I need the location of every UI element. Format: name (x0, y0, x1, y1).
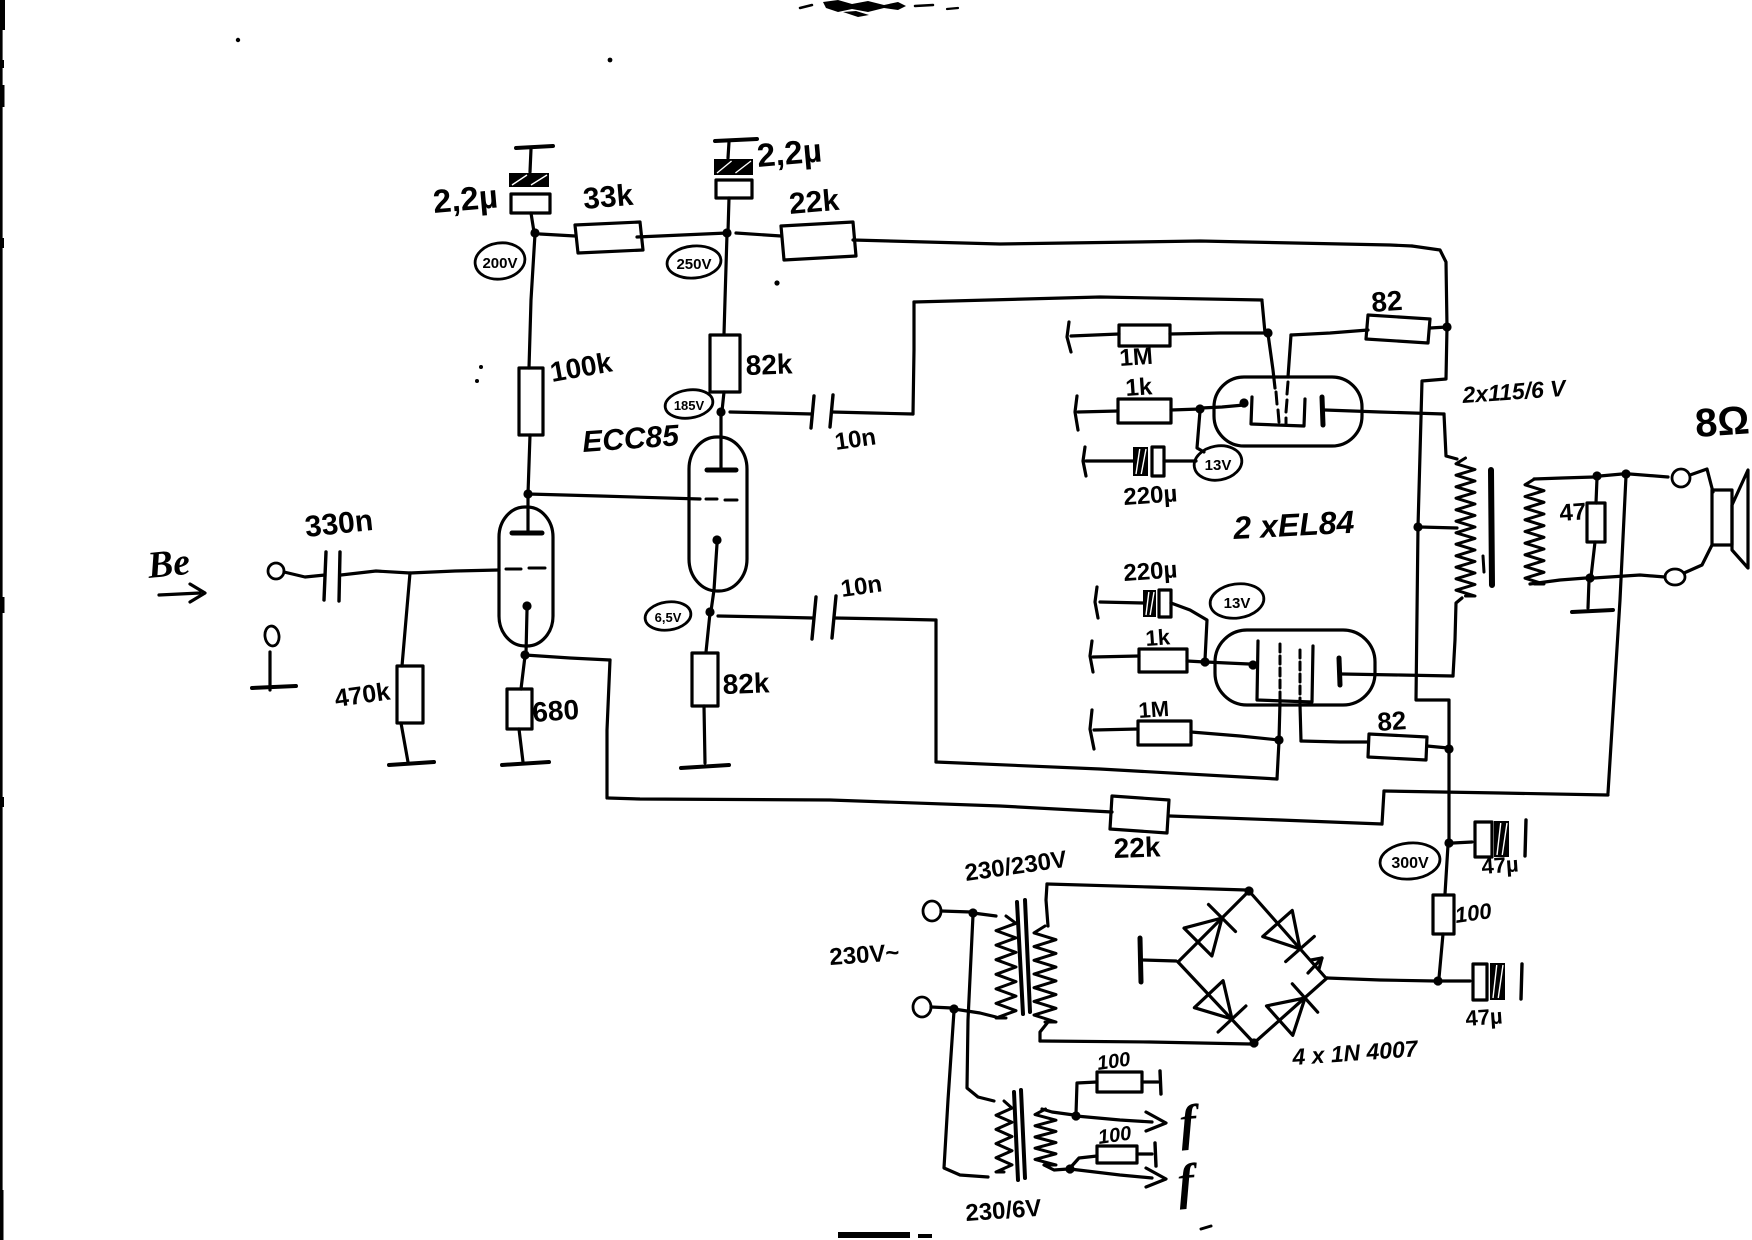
svg-text:8Ω: 8Ω (1694, 398, 1751, 446)
svg-text:230V~: 230V~ (829, 939, 901, 971)
svg-text:22k: 22k (1113, 831, 1161, 864)
svg-text:f: f (1177, 1093, 1203, 1151)
svg-text:82: 82 (1370, 285, 1403, 318)
svg-text:13V: 13V (1224, 595, 1251, 612)
svg-text:100: 100 (1453, 898, 1494, 928)
svg-text:47: 47 (1559, 498, 1588, 527)
svg-text:300V: 300V (1391, 855, 1429, 872)
svg-text:4 x 1N 4007: 4 x 1N 4007 (1291, 1035, 1420, 1070)
svg-text:47µ: 47µ (1481, 851, 1520, 879)
svg-text:220µ: 220µ (1123, 556, 1179, 587)
svg-text:f: f (1175, 1152, 1201, 1210)
svg-text:ECC85: ECC85 (581, 419, 681, 459)
svg-text:100k: 100k (548, 346, 615, 387)
svg-text:2x115/6 V: 2x115/6 V (1461, 375, 1568, 408)
svg-text:10n: 10n (833, 423, 878, 455)
svg-text:10n: 10n (839, 570, 884, 602)
svg-text:82: 82 (1376, 705, 1407, 737)
svg-text:2,2µ: 2,2µ (431, 177, 499, 220)
svg-text:47µ: 47µ (1465, 1003, 1504, 1031)
svg-text:82k: 82k (745, 348, 793, 381)
svg-text:100: 100 (1097, 1123, 1133, 1149)
svg-text:2,2µ: 2,2µ (755, 131, 823, 174)
svg-text:220µ: 220µ (1123, 480, 1179, 511)
svg-text:82k: 82k (722, 667, 770, 700)
svg-text:22k: 22k (788, 184, 841, 221)
svg-text:Be: Be (145, 541, 192, 587)
svg-text:470k: 470k (333, 677, 392, 712)
svg-text:330n: 330n (303, 504, 374, 544)
svg-text:1M: 1M (1119, 343, 1154, 372)
svg-text:13V: 13V (1205, 457, 1232, 474)
svg-text:200V: 200V (482, 255, 517, 272)
svg-text:230/230V: 230/230V (963, 846, 1069, 887)
svg-text:185V: 185V (674, 398, 705, 413)
svg-text:33k: 33k (582, 179, 635, 216)
svg-text:680: 680 (531, 694, 580, 728)
svg-text:1k: 1k (1125, 373, 1154, 402)
svg-text:230/6V: 230/6V (965, 1195, 1043, 1227)
svg-text:6,5V: 6,5V (655, 610, 682, 625)
svg-text:250V: 250V (676, 256, 711, 273)
svg-text:1k: 1k (1145, 624, 1172, 651)
svg-text:100: 100 (1096, 1049, 1132, 1075)
svg-text:1M: 1M (1138, 696, 1170, 723)
svg-text:2 xEL84: 2 xEL84 (1231, 504, 1355, 546)
